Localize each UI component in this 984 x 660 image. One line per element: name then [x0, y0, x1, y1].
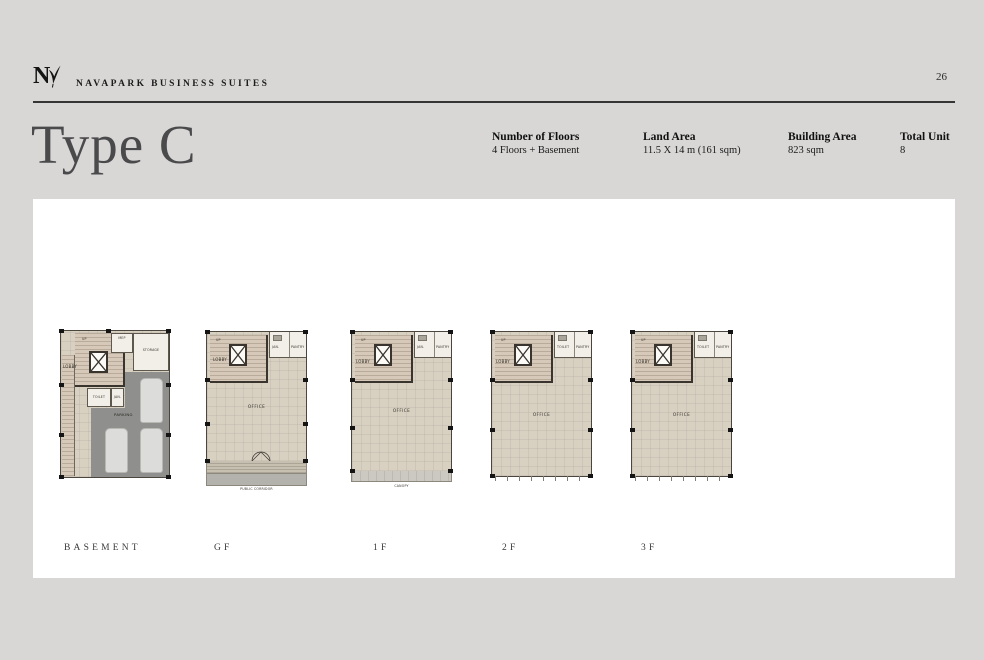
- room-label-office: OFFICE: [632, 412, 731, 417]
- column-marker: [303, 378, 308, 382]
- column-marker: [630, 378, 635, 382]
- column-marker: [350, 378, 355, 382]
- room-label-lobby: LOBBY: [213, 357, 227, 362]
- floor-name-2f: 2F: [502, 543, 518, 553]
- room-label-janitor: JAN.: [272, 345, 279, 349]
- room-label-up: UP: [216, 338, 221, 342]
- service-rooms: TOILET PANTRY: [554, 332, 591, 358]
- service-rooms: TOILET PANTRY: [694, 332, 731, 358]
- column-marker: [588, 330, 593, 334]
- service-rooms: JAN. PANTRY: [414, 332, 451, 358]
- column-marker: [630, 428, 635, 432]
- room-label-up: UP: [501, 338, 506, 342]
- room-label-janitor: JAN.: [112, 395, 123, 399]
- room-label-up: UP: [361, 338, 366, 342]
- room-label-toilet: TOILET: [697, 345, 709, 349]
- canopy-strip: CANOPY: [351, 471, 452, 482]
- column-marker: [166, 329, 171, 333]
- room-toilet: TOILET: [87, 388, 111, 407]
- spec-number-of-floors: Number of Floors 4 Floors + Basement: [492, 131, 579, 156]
- column-marker: [106, 329, 111, 333]
- room-label-pantry: PANTRY: [716, 345, 729, 349]
- room-label-corridor: PUBLIC CORRIDOR: [240, 487, 273, 491]
- room-label-lobby: LOBBY: [636, 359, 650, 364]
- column-marker: [630, 330, 635, 334]
- elevator: [374, 344, 392, 366]
- column-marker: [588, 474, 593, 478]
- column-marker: [490, 428, 495, 432]
- elevator: [514, 344, 532, 366]
- column-marker: [728, 474, 733, 478]
- room-label-lobby: LOBBY: [496, 359, 510, 364]
- spec-value: 8: [900, 145, 950, 156]
- logo-letter-n: N: [33, 64, 49, 88]
- elevator-x-icon: [91, 353, 106, 371]
- column-marker: [59, 433, 64, 437]
- sink-fixture: [558, 335, 567, 341]
- column-marker: [205, 459, 210, 463]
- column-marker: [448, 330, 453, 334]
- navapark-logo: N: [33, 64, 61, 88]
- elevator: [229, 344, 247, 366]
- floorplan-3f: UP LOBBY TOILET PANTRY OFFICE: [631, 331, 732, 477]
- column-marker: [350, 426, 355, 430]
- spec-label: Number of Floors: [492, 131, 579, 143]
- column-marker: [205, 330, 210, 334]
- column-marker: [205, 422, 210, 426]
- column-marker: [166, 383, 171, 387]
- elevator: [654, 344, 672, 366]
- column-marker: [303, 459, 308, 463]
- room-label-janitor: JAN.: [417, 345, 424, 349]
- page-number: 26: [936, 71, 947, 83]
- room-label-toilet: TOILET: [557, 345, 569, 349]
- car-stall: [140, 378, 163, 423]
- page-title: Type C: [31, 116, 197, 174]
- column-marker: [205, 378, 210, 382]
- floor-name-gf: GF: [214, 543, 233, 553]
- floorplan-1f: UP LOBBY JAN. PANTRY OFFICE CANOPY: [351, 331, 452, 472]
- public-corridor-strip: PUBLIC CORRIDOR: [206, 474, 307, 486]
- facade-ticks: [495, 476, 588, 481]
- room-label-canopy: CANOPY: [394, 484, 408, 488]
- room-label-storage: STORAGE: [134, 348, 168, 352]
- logo-leaf-icon: [48, 64, 61, 88]
- elevator-x-icon: [516, 346, 530, 364]
- room-storage: STORAGE: [133, 333, 169, 371]
- room-label-mep: MEP: [112, 336, 132, 340]
- brand-name: NAVAPARK BUSINESS SUITES: [76, 79, 269, 89]
- car-stall: [140, 428, 163, 473]
- column-marker: [59, 475, 64, 479]
- room-label-pantry: PANTRY: [291, 345, 304, 349]
- sink-fixture: [418, 335, 427, 341]
- room-label-up: UP: [82, 337, 87, 341]
- column-marker: [728, 428, 733, 432]
- brochure-page: N NAVAPARK BUSINESS SUITES 26 Type C Num…: [0, 0, 984, 660]
- room-label-lobby: LOBBY: [63, 364, 77, 369]
- service-rooms: JAN. PANTRY: [269, 332, 306, 358]
- room-label-pantry: PANTRY: [576, 345, 589, 349]
- column-marker: [630, 474, 635, 478]
- partition-wall: [574, 332, 575, 357]
- partition-wall: [289, 332, 290, 357]
- partition-wall: [714, 332, 715, 357]
- room-label-pantry: PANTRY: [436, 345, 449, 349]
- spec-value: 11.5 X 14 m (161 sqm): [643, 145, 741, 156]
- column-marker: [490, 474, 495, 478]
- floor-name-3f: 3F: [641, 543, 657, 553]
- elevator-x-icon: [376, 346, 390, 364]
- floor-name-1f: 1F: [373, 543, 389, 553]
- column-marker: [448, 469, 453, 473]
- column-marker: [728, 330, 733, 334]
- spec-label: Land Area: [643, 131, 741, 143]
- room-label-parking: PARKING: [114, 412, 133, 417]
- car-stall: [105, 428, 128, 473]
- column-marker: [350, 330, 355, 334]
- floorplan-basement: UP LOBBY MEP STORAGE TOILET JAN. PARKING: [60, 330, 170, 478]
- spec-building-area: Building Area 823 sqm: [788, 131, 857, 156]
- column-marker: [490, 330, 495, 334]
- column-marker: [303, 330, 308, 334]
- elevator-x-icon: [656, 346, 670, 364]
- room-label-lobby: LOBBY: [356, 359, 370, 364]
- column-marker: [490, 378, 495, 382]
- facade-ticks: [635, 476, 728, 481]
- column-marker: [588, 428, 593, 432]
- room-label-office: OFFICE: [492, 412, 591, 417]
- column-marker: [59, 383, 64, 387]
- column-marker: [448, 426, 453, 430]
- header-divider: [33, 101, 955, 103]
- floor-name-basement: BASEMENT: [64, 543, 141, 553]
- sink-fixture: [273, 335, 282, 341]
- room-label-up: UP: [641, 338, 646, 342]
- spec-value: 4 Floors + Basement: [492, 145, 579, 156]
- column-marker: [59, 329, 64, 333]
- elevator-x-icon: [231, 346, 245, 364]
- column-marker: [166, 433, 171, 437]
- column-marker: [588, 378, 593, 382]
- column-marker: [728, 378, 733, 382]
- spec-land-area: Land Area 11.5 X 14 m (161 sqm): [643, 131, 741, 156]
- column-marker: [303, 422, 308, 426]
- spec-value: 823 sqm: [788, 145, 857, 156]
- elevator: [89, 351, 108, 373]
- room-label-office: OFFICE: [207, 404, 306, 409]
- sink-fixture: [698, 335, 707, 341]
- column-marker: [166, 475, 171, 479]
- spec-total-unit: Total Unit 8: [900, 131, 950, 156]
- room-mep: MEP: [111, 333, 133, 353]
- column-marker: [448, 378, 453, 382]
- spec-label: Building Area: [788, 131, 857, 143]
- room-janitor: JAN.: [111, 388, 124, 407]
- room-label-office: OFFICE: [352, 408, 451, 413]
- spec-label: Total Unit: [900, 131, 950, 143]
- terrace-strip: TERRACE: [206, 461, 307, 474]
- column-marker: [350, 469, 355, 473]
- entry-door-icon: [251, 451, 271, 461]
- partition-wall: [434, 332, 435, 357]
- floorplan-2f: UP LOBBY TOILET PANTRY OFFICE: [491, 331, 592, 477]
- room-label-toilet: TOILET: [88, 395, 110, 399]
- floorplan-gf: UP LOBBY JAN. PANTRY OFFICE TERRACE PUBL…: [206, 331, 307, 462]
- ramp: [62, 355, 75, 476]
